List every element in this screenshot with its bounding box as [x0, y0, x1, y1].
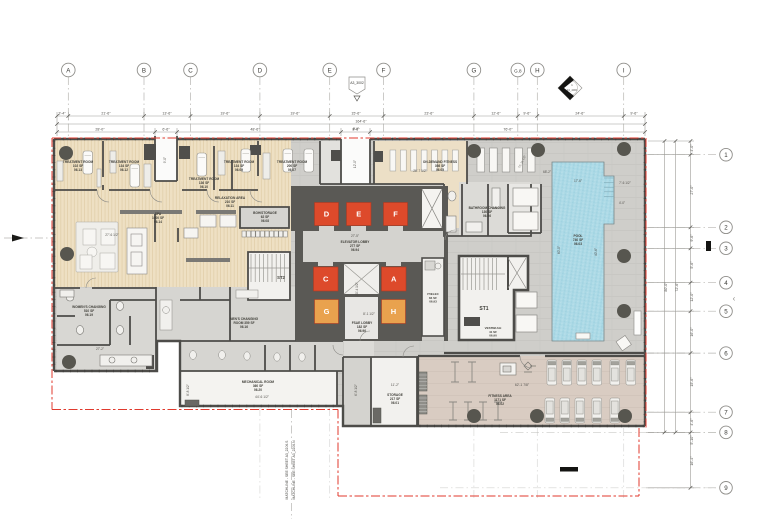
svg-text:06.06: 06.06 [483, 214, 491, 218]
svg-text:5'-10": 5'-10" [690, 435, 694, 445]
svg-text:4'-0": 4'-0" [690, 144, 694, 152]
svg-text:4: 4 [724, 280, 728, 287]
svg-text:F: F [382, 67, 386, 74]
svg-text:H: H [535, 67, 539, 74]
svg-text:26'-7 1/2": 26'-7 1/2" [413, 169, 426, 173]
svg-text:06.90: 06.90 [489, 334, 497, 338]
svg-text:9'-0": 9'-0" [163, 157, 167, 163]
svg-text:3'-4": 3'-4" [58, 112, 66, 116]
svg-text:4'-0": 4'-0" [619, 201, 625, 205]
svg-text:62'-1 7/8": 62'-1 7/8" [515, 383, 530, 387]
svg-text:24'-6": 24'-6" [575, 112, 585, 116]
svg-text:5: 5 [724, 308, 728, 315]
svg-text:19'-6": 19'-6" [220, 112, 230, 116]
svg-text:28'-0": 28'-0" [95, 128, 105, 132]
svg-text:A: A [391, 275, 397, 284]
svg-text:9'-6": 9'-6" [690, 234, 694, 242]
svg-text:ST1: ST1 [479, 306, 488, 312]
svg-text:D: D [258, 67, 263, 74]
svg-text:68'-2": 68'-2" [543, 170, 551, 174]
svg-text:06.11: 06.11 [226, 204, 234, 208]
svg-text:16'-4": 16'-4" [690, 456, 694, 466]
svg-text:06.16: 06.16 [240, 325, 248, 329]
svg-text:06.14: 06.14 [154, 220, 162, 224]
svg-text:MATCHLINE - SEE SHEET A3_2206.: MATCHLINE - SEE SHEET A3_2206.N [292, 440, 296, 500]
svg-text:5'-6": 5'-6" [690, 261, 694, 269]
svg-text:12'-0": 12'-0" [353, 160, 357, 168]
svg-text:20'-4 1/2": 20'-4 1/2" [355, 282, 359, 295]
svg-text:H: H [391, 307, 396, 316]
svg-text:06.12: 06.12 [120, 168, 128, 172]
svg-text:11'-2": 11'-2" [391, 383, 400, 387]
svg-text:21'-6": 21'-6" [101, 112, 111, 116]
svg-text:15'-6": 15'-6" [690, 377, 694, 387]
svg-text:23'-6": 23'-6" [424, 112, 434, 116]
svg-text:72'-6": 72'-6" [675, 282, 679, 292]
svg-text:27'-2": 27'-2" [96, 347, 104, 351]
svg-text:E: E [356, 210, 361, 219]
svg-text:76'-0": 76'-0" [503, 128, 513, 132]
svg-text:9: 9 [724, 485, 728, 492]
svg-text:C: C [188, 67, 193, 74]
svg-text:D: D [324, 210, 330, 219]
svg-text:06.05: 06.05 [436, 168, 444, 172]
svg-text:12'-0": 12'-0" [690, 292, 694, 302]
svg-text:44'-6 1/2": 44'-6 1/2" [255, 395, 270, 399]
svg-text:06.01: 06.01 [391, 401, 399, 405]
svg-text:164'-6": 164'-6" [355, 120, 367, 124]
svg-text:7: 7 [724, 409, 728, 416]
svg-text:48'-6": 48'-6" [250, 128, 260, 132]
svg-text:2: 2 [724, 225, 728, 232]
svg-text:6: 6 [724, 350, 728, 357]
svg-text:‹: ‹ [733, 294, 736, 303]
svg-text:E: E [328, 67, 332, 74]
svg-text:19'-6": 19'-6" [290, 112, 300, 116]
svg-text:16'-0": 16'-0" [690, 327, 694, 337]
svg-text:G: G [324, 307, 330, 316]
svg-text:7'-6 1/2": 7'-6 1/2" [619, 181, 631, 185]
svg-text:1: 1 [724, 152, 728, 159]
svg-text:06.94: 06.94 [351, 248, 359, 252]
svg-text:8'-8 1/2": 8'-8 1/2" [186, 384, 190, 396]
svg-text:06.08: 06.08 [261, 219, 269, 223]
svg-text:06.02: 06.02 [496, 402, 504, 406]
svg-text:27'-0": 27'-0" [690, 185, 694, 195]
svg-text:3: 3 [724, 246, 728, 253]
svg-text:6'-6": 6'-6" [162, 128, 170, 132]
svg-text:9'-6": 9'-6" [630, 112, 638, 116]
svg-text:40'-6": 40'-6" [594, 248, 598, 256]
svg-text:I: I [623, 67, 625, 74]
svg-text:A3_3002: A3_3002 [350, 81, 364, 85]
svg-text:G: G [471, 67, 476, 74]
svg-text:8'-1 1/2": 8'-1 1/2" [363, 312, 375, 316]
svg-text:06.03: 06.03 [574, 242, 582, 246]
svg-text:ST2: ST2 [277, 275, 285, 280]
svg-text:06.19: 06.19 [85, 313, 93, 317]
svg-text:06.96: 06.96 [358, 329, 366, 333]
svg-text:9'-6": 9'-6" [523, 112, 531, 116]
svg-text:A3_4001: A3_4001 [566, 88, 578, 92]
svg-text:4'-6": 4'-6" [690, 418, 694, 426]
svg-text:27'-6 1/2": 27'-6 1/2" [105, 233, 118, 237]
svg-text:13'-6": 13'-6" [162, 112, 172, 116]
svg-text:12'-6": 12'-6" [491, 112, 501, 116]
svg-text:06.09: 06.09 [235, 168, 243, 172]
svg-text:06.20: 06.20 [254, 388, 262, 392]
svg-text:B: B [142, 67, 146, 74]
svg-text:60'-0": 60'-0" [557, 246, 561, 254]
svg-text:06.93: 06.93 [429, 300, 437, 304]
svg-text:6'-8 1/2": 6'-8 1/2" [354, 384, 358, 396]
svg-text:MATCHLINE - SEE SHEET A3_2206.: MATCHLINE - SEE SHEET A3_2206.S [285, 440, 289, 500]
svg-text:C: C [323, 275, 329, 284]
svg-text:80'-0": 80'-0" [664, 282, 668, 292]
svg-text:06.07: 06.07 [288, 168, 296, 172]
svg-text:G.8: G.8 [514, 68, 522, 73]
svg-text:27'-5": 27'-5" [351, 234, 359, 238]
svg-text:06.10: 06.10 [200, 185, 208, 189]
svg-text:8'-6": 8'-6" [353, 127, 359, 131]
svg-text:06.13: 06.13 [74, 168, 82, 172]
svg-text:17'-6": 17'-6" [574, 179, 582, 183]
svg-text:8: 8 [724, 430, 728, 437]
svg-text:15'-6": 15'-6" [351, 112, 361, 116]
svg-text:F: F [393, 210, 398, 219]
